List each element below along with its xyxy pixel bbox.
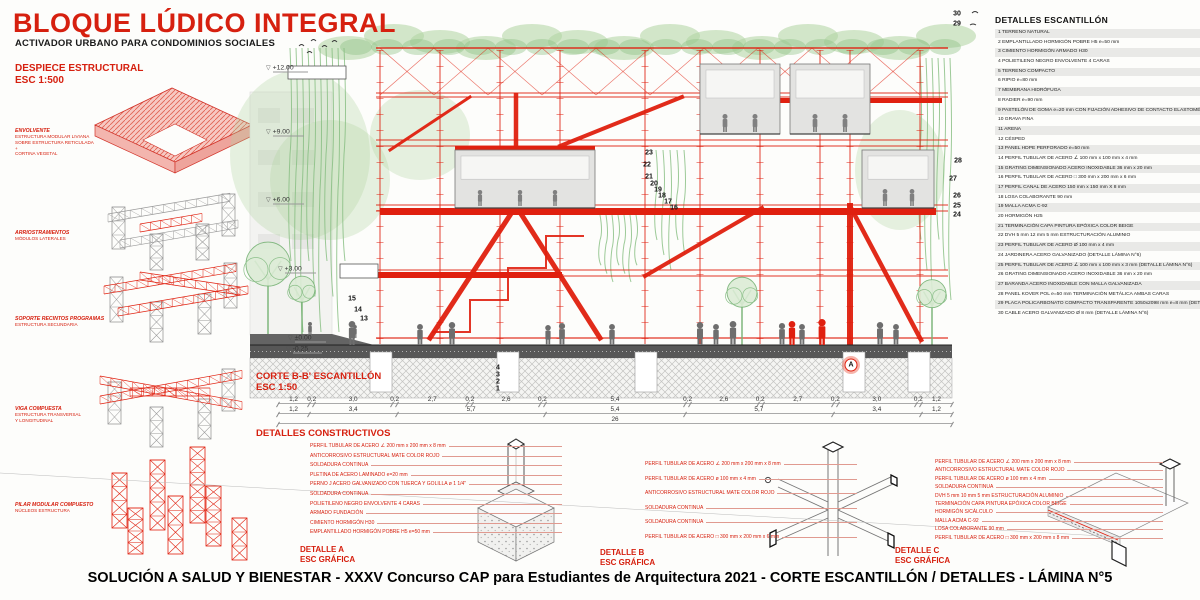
legend-item: 14 PERFIL TUBULAR DE ACERO ∠ 100 mm x 10… <box>995 155 1200 164</box>
annotation-row: SOLDADURA CONTINUA <box>645 520 857 525</box>
despiece-label-pilar: PILAR MODULAR COMPUESTO NÚCLEOS ESTRUCTU… <box>15 502 110 514</box>
elevation-marker: ▽+9.00 <box>266 129 304 136</box>
dimension-row: 1,20,23,00,22,70,22,60,25,40,22,60,22,70… <box>278 394 952 404</box>
sheet-title: SOLUCIÓN A SALUD Y BIENESTAR - XXXV Conc… <box>0 570 1200 586</box>
annotation-row: PERFIL TUBULAR DE ACERO ∠ 200 mm x 200 m… <box>310 444 562 449</box>
annotation-row: PERFIL TUBULAR DE ACERO ∠ 200 mm x 200 m… <box>645 462 857 467</box>
legend-item: 2 EMPLANTILLADO HORMIGÓN POBRE H5 e=50 m… <box>995 39 1200 48</box>
dimension-lines: 1,20,23,00,22,70,22,60,25,40,22,60,22,70… <box>278 394 952 426</box>
legend-item: 28 PANEL KOVER POL e=50 mm TERMINACIÓN M… <box>995 291 1200 300</box>
annotation-row: EMPLANTILLADO HORMIGÓN POBRE H5 e=50 mm <box>310 530 562 535</box>
detail-a-label: DETALLE A ESC GRÁFICA <box>300 545 355 565</box>
legend-item: 17 PERFIL CANAL DE ACERO 150 mm x 150 mm… <box>995 184 1200 193</box>
legend-item: 7 MEMBRANA HIDRÓFUGA <box>995 87 1200 96</box>
callout-number: 29 <box>953 21 961 28</box>
despiece-label-viga: VIGA COMPUESTA ESTRUCTURA TRANSVERSAL Y … <box>15 406 110 424</box>
elevation-marker: ▽-0.25 <box>286 346 322 353</box>
legend-item: 23 PERFIL TUBULAR DE ACERO Ø 100 mm x 4 … <box>995 242 1200 251</box>
despiece-label-envolvente: ENVOLVENTE ESTRUCTURA MODULAR LIVIANA SO… <box>15 128 110 157</box>
annotation-row: POLIETILENO NEGRO ENVOLVENTE 4 CARAS <box>310 502 562 507</box>
detail-reference-marker: A <box>845 359 858 372</box>
annotation-row: SOLDADURA CONTINUA <box>645 506 857 511</box>
legend-item: 21 TERMINACIÓN CAPA PINTURA EPÓXICA COLO… <box>995 223 1200 232</box>
annotation-row: TERMINACIÓN CAPA PINTURA EPÓXICA COLOR B… <box>935 502 1163 507</box>
annotation-row: ANTICORROSIVO ESTRUCTURAL MATE COLOR ROJ… <box>645 491 857 496</box>
detail-c-label: DETALLE C ESC GRÁFICA <box>895 546 950 566</box>
annotation-row: CIMIENTO HORMIGÓN H30 <box>310 521 562 526</box>
annotation-row: DVH 5 mm 10 mm 5 mm ESTRUCTURACIÓN ALUMI… <box>935 494 1163 499</box>
annotation-row: ANTICORROSIVO ESTRUCTURAL MATE COLOR ROJ… <box>310 454 562 459</box>
annotation-row: SOLDADURA CONTINUA <box>310 463 562 468</box>
envelope-thumbnail <box>95 88 252 173</box>
details-title: DETALLES CONSTRUCTIVOS <box>256 429 390 440</box>
legend-item: 8 RADIER e=90 mm <box>995 97 1200 106</box>
callout-number: 1 <box>496 386 500 393</box>
annotation-row: ARMADO FUNDACIÓN <box>310 511 562 516</box>
annotation-row: MALLA ACMA C-92 <box>935 519 1163 524</box>
despiece-label-arriostramientos: ARRIOSTRAMIENTOS MÓDULOS LATERALES <box>15 230 110 242</box>
legend-item: 3 CIMIENTO HORMIGÓN ARMADO H30 <box>995 48 1200 57</box>
callout-number: 22 <box>643 162 651 169</box>
annotation-row: PERFIL TUBULAR DE ACERO □ 300 mm x 200 m… <box>645 535 857 540</box>
legend-list: 1 TERRENO NATURAL2 EMPLANTILLADO HORMIGÓ… <box>995 29 1200 320</box>
dimension-row: 26 <box>278 414 952 424</box>
callout-number: 24 <box>953 212 961 219</box>
elevation-marker: ▽+12.00 <box>266 65 308 72</box>
legend-title: DETALLES ESCANTILLÓN <box>995 15 1108 25</box>
legend-item: 26 GRATING DIMENSIONADO ACERO INOXIDABLE… <box>995 271 1200 280</box>
callout-number: 26 <box>953 193 961 200</box>
annotation-row: HORMIGÓN S/CÁLCULO <box>935 510 1163 515</box>
legend-item: 25 PERFIL TUBULAR DE ACERO ∠ 100 mm x 10… <box>995 262 1200 271</box>
callout-number: 3 <box>496 372 500 379</box>
legend-item: 11 ARENA <box>995 126 1200 135</box>
pilar-modular-thumbnail <box>112 447 247 560</box>
elevation-marker: ▽+3.00 <box>278 266 316 273</box>
callout-number: 27 <box>949 176 957 183</box>
legend-item: 4 POLIETILENO NEGRO ENVOLVENTE 4 CARAS <box>995 58 1200 67</box>
viga-compuesta-thumbnail <box>100 369 242 447</box>
page-title: BLOQUE LÚDICO INTEGRAL <box>13 8 396 39</box>
detail-c-annotations: PERFIL TUBULAR DE ACERO ∠ 200 mm x 200 m… <box>935 460 1163 544</box>
legend-item: 10 GRAVA FINA <box>995 116 1200 125</box>
despiece-label-soporte: SOPORTE RECINTOS PROGRAMAS ESTRUCTURA SE… <box>15 316 110 328</box>
legend-item: 19 MALLA ACMA C-92 <box>995 203 1200 212</box>
callout-number: 21 <box>645 174 653 181</box>
legend-item: 27 BARANDA ACERO INOXIDABLE CON MALLA GA… <box>995 281 1200 290</box>
callout-number: 14 <box>354 307 362 314</box>
legend-item: 18 LOSA COLABORANTE 90 mm <box>995 194 1200 203</box>
legend-item: 30 CABLE ACERO GALVANIZADO Ø 8 mm (DETAL… <box>995 310 1200 319</box>
arriostramientos-thumbnail <box>108 193 238 270</box>
callout-number: 25 <box>953 203 961 210</box>
annotation-row: SOLDADURA CONTINUA <box>310 492 562 497</box>
annotation-row: PERFIL TUBULAR DE ACERO ∠ 200 mm x 200 m… <box>935 460 1163 465</box>
elevation-marker: ▽+6.00 <box>266 197 304 204</box>
dimension-row: 1,23,45,75,45,73,41,2 <box>278 404 952 414</box>
annotation-row: PLETINA DE ACERO LAMINADO e=20 mm <box>310 473 562 478</box>
detail-b-annotations: PERFIL TUBULAR DE ACERO ∠ 200 mm x 200 m… <box>645 462 857 549</box>
soporte-recintos-thumbnail <box>104 263 248 342</box>
annotation-row: LOSA COLABORANTE 90 mm <box>935 527 1163 532</box>
room-boxes <box>455 64 934 208</box>
legend-item: 29 PLACA POLICARBONATO COMPACTO TRANSPAR… <box>995 300 1200 309</box>
legend-item: 5 TERRENO COMPACTO <box>995 68 1200 77</box>
detail-b-label: DETALLE B ESC GRÁFICA <box>600 548 655 568</box>
callout-number: 2 <box>496 379 500 386</box>
legend-item: 16 PERFIL TUBULAR DE ACERO □ 300 mm x 20… <box>995 174 1200 183</box>
section-title: CORTE B-B' ESCANTILLÓN ESC 1:50 <box>256 372 381 394</box>
annotation-row: PERFIL TUBULAR DE ACERO ø 100 mm x 4 mm <box>935 477 1163 482</box>
legend-item: 1 TERRENO NATURAL <box>995 29 1200 38</box>
page-subtitle: ACTIVADOR URBANO PARA CONDOMINIOS SOCIAL… <box>15 38 275 49</box>
callout-number: 28 <box>954 158 962 165</box>
legend-item: 20 HORMIGÓN H25 <box>995 213 1200 222</box>
callout-number: 4 <box>496 365 500 372</box>
callout-number: 30 <box>953 11 961 18</box>
callout-number: 13 <box>360 316 368 323</box>
poster-board: BLOQUE LÚDICO INTEGRAL ACTIVADOR URBANO … <box>0 0 1200 600</box>
callout-number: 15 <box>348 296 356 303</box>
callout-number: 23 <box>645 150 653 157</box>
annotation-row: SOLDADURA CONTINUA <box>935 485 1163 490</box>
legend-item: 22 DVH 5 mm 12 mm 5 mm ESTRUCTURACIÓN AL… <box>995 232 1200 241</box>
legend-item: 24 JARDINERA ACERO GALVANIZADO (DETALLE … <box>995 252 1200 261</box>
callout-number: 16 <box>670 205 678 212</box>
annotation-row: PERFIL TUBULAR DE ACERO □ 300 mm x 200 m… <box>935 536 1163 541</box>
legend-item: 9 PASTELÓN DE GOMA e=20 mm CON FIJACIÓN … <box>995 107 1200 116</box>
legend-item: 6 RIPIO e=80 mm <box>995 77 1200 86</box>
annotation-row: PERFIL TUBULAR DE ACERO ø 100 mm x 4 mm <box>645 477 857 482</box>
elevation-marker: ▽±0.00 <box>288 335 326 342</box>
legend-item: 15 GRATING DIMENSIONADO ACERO INOXIDABLE… <box>995 165 1200 174</box>
annotation-row: PERNO J ACERO GALVANIZADO CON TUERCA Y G… <box>310 482 562 487</box>
people-silhouettes <box>308 319 899 345</box>
legend-item: 13 PANEL HDPE PERFORADO e=50 mm <box>995 145 1200 154</box>
detail-a-annotations: PERFIL TUBULAR DE ACERO ∠ 200 mm x 200 m… <box>310 444 562 540</box>
legend-item: 12 CÉSPED <box>995 136 1200 145</box>
annotation-row: ANTICORROSIVO ESTRUCTURAL MATE COLOR ROJ… <box>935 468 1163 473</box>
despiece-title: DESPIECE ESTRUCTURAL ESC 1:500 <box>15 63 143 86</box>
